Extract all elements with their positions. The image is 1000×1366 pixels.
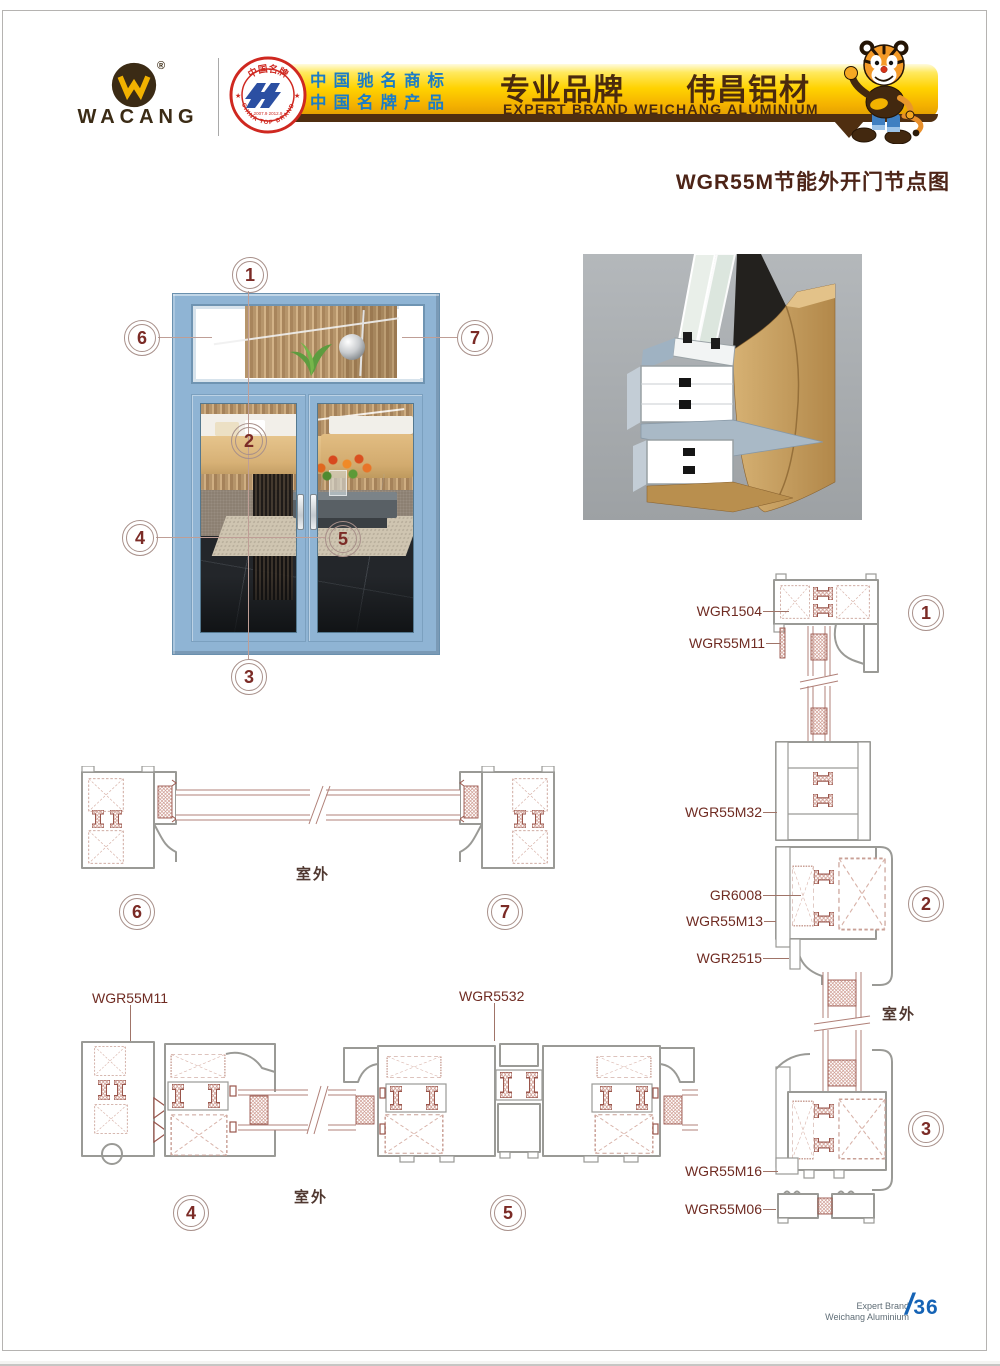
outdoor-label-door: 室外 (294, 1186, 328, 1207)
svg-text:★: ★ (294, 92, 300, 100)
leader-line (763, 611, 789, 612)
outdoor-label-transom: 室外 (296, 863, 330, 884)
section-drawing-6-7 (78, 766, 558, 878)
label-wgr1504: WGR1504 (697, 603, 762, 619)
label-wgr2515: WGR2515 (697, 950, 762, 966)
page-bottom-edge (0, 1361, 1000, 1366)
drawing-threshold (778, 1192, 874, 1224)
wacang-logo-icon (110, 61, 158, 109)
section-drawing-5 (340, 1038, 698, 1170)
profile-3d-render (583, 254, 862, 520)
section-callout-4: 4 (173, 1195, 209, 1231)
door-handle-left (297, 494, 304, 530)
claim-line-1: 中国驰名商标 (310, 70, 451, 92)
leader-line (494, 1003, 495, 1041)
drawing-detail-2 (776, 742, 892, 985)
callout-line-vertical (248, 291, 249, 659)
door-handle-right (310, 494, 317, 530)
door-callout-4: 4 (122, 520, 158, 556)
badge-years: 2007.9 2012.9 (254, 111, 283, 116)
section-drawings-right-column (768, 572, 904, 1232)
door-leaf-right (308, 394, 423, 642)
label-wgr55m06: WGR55M06 (685, 1201, 762, 1217)
scene-floor-fade (201, 576, 297, 632)
footer-page-number: /36 (905, 1288, 939, 1322)
banner-claims: 中国驰名商标 中国名牌产品 (310, 70, 451, 114)
transom-white-right (399, 306, 423, 378)
section-callout-6: 6 (119, 894, 155, 930)
door-callout-1: 1 (232, 257, 268, 293)
transom-window (191, 304, 425, 384)
callout-line-7 (402, 337, 457, 338)
door-callout-5: 5 (325, 521, 361, 557)
label-wgr55m11-left: WGR55M11 (92, 990, 168, 1006)
section-drawing-4 (78, 1038, 340, 1170)
section-callout-1: 1 (908, 595, 944, 631)
leader-line (764, 921, 776, 922)
door-glass-right (317, 403, 414, 633)
label-wgr5532: WGR5532 (459, 988, 524, 1004)
section-callout-2: 2 (908, 886, 944, 922)
page-title: WGR55M节能外开门节点图 (676, 166, 950, 196)
section-callout-5: 5 (490, 1195, 526, 1231)
footer-brand-line2: Weichang Aluminium (825, 1312, 909, 1323)
svg-text:★: ★ (235, 92, 241, 100)
door-callout-2: 2 (231, 423, 267, 459)
leader-line (763, 895, 801, 896)
logo-wordmark: WACANG (64, 106, 212, 129)
banner-slogan-en: EXPERT BRAND WEICHANG ALUMINIUM (503, 101, 819, 117)
scene-floor-fade (317, 576, 413, 632)
section-callout-3: 3 (908, 1111, 944, 1147)
tiger-mascot-icon (832, 38, 938, 144)
registered-mark: ® (157, 60, 165, 72)
door-illustration (172, 293, 440, 655)
label-wgr55m16: WGR55M16 (685, 1163, 762, 1179)
label-gr6008: GR6008 (710, 887, 762, 903)
page-number-value: 36 (913, 1296, 938, 1319)
leader-line (766, 643, 781, 644)
leader-line (763, 1209, 776, 1210)
label-wgr55m11-right: WGR55M11 (689, 635, 765, 651)
door-callout-3: 3 (231, 659, 267, 695)
callout-line-6 (158, 337, 212, 338)
section-callout-7: 7 (487, 894, 523, 930)
outdoor-label-right: 室外 (882, 1003, 916, 1024)
footer-brand-line1: Expert Brand (825, 1301, 909, 1312)
leader-line (763, 1171, 778, 1172)
door-callout-6: 6 (124, 320, 160, 356)
catalog-page: ® WACANG 中国名牌 CHINA TOP BRAND ★ ★ 2007.9… (0, 0, 1000, 1366)
leader-line (763, 958, 789, 959)
scene-flowers (317, 454, 375, 482)
header-divider (218, 58, 219, 136)
living-room-scene (317, 404, 413, 632)
scene-sofa-back-right (329, 416, 413, 434)
scene-carpet-runner (212, 516, 297, 556)
transom-lamp (339, 334, 365, 360)
footer-brand-text: Expert Brand Weichang Aluminium (825, 1301, 909, 1322)
label-wgr55m32: WGR55M32 (685, 804, 762, 820)
door-callout-7: 7 (457, 320, 493, 356)
china-top-brand-badge-icon: 中国名牌 CHINA TOP BRAND ★ ★ 2007.9 2012.9 (228, 55, 308, 135)
callout-line-4-5 (156, 537, 325, 538)
transom-plant-icon (288, 340, 334, 376)
claim-line-2: 中国名牌产品 (310, 92, 451, 114)
leader-line (763, 812, 777, 813)
label-wgr55m13: WGR55M13 (686, 913, 763, 929)
